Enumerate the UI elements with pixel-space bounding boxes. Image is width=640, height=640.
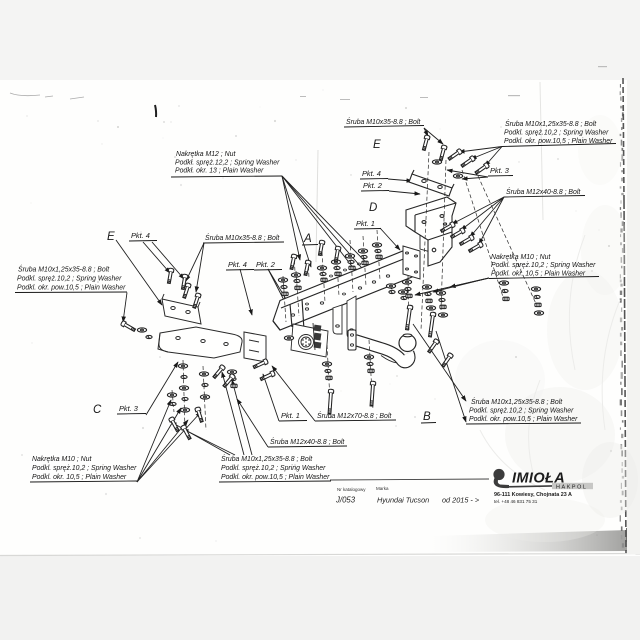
svg-text:Śruba M12x70-8.8 ; Bolt: Śruba M12x70-8.8 ; Bolt [317, 411, 392, 420]
svg-text:Podkl. spręż.10,2 ; Spring Was: Podkl. spręż.10,2 ; Spring Washer [221, 465, 326, 472]
svg-text:Marka: Marka [376, 486, 389, 491]
svg-text:Podkl. spręż.10,2 ; Spring Was: Podkl. spręż.10,2 ; Spring Washer [504, 130, 609, 137]
svg-text:Śruba M10x1,25x35-8.8 ; Bolt: Śruba M10x1,25x35-8.8 ; Bolt [471, 397, 563, 406]
svg-text:J/053: J/053 [335, 496, 356, 505]
svg-text:C: C [93, 404, 102, 416]
svg-text:96-111 Kowiesy, Chojnata 23 A: 96-111 Kowiesy, Chojnata 23 A [494, 492, 572, 498]
svg-text:A: A [303, 233, 312, 245]
svg-text:Podkl. spręż.10,2 ; Spring Was: Podkl. spręż.10,2 ; Spring Washer [469, 408, 574, 415]
svg-text:Podkł. spręż.12,2 ; Spring Was: Podkł. spręż.12,2 ; Spring Washer [175, 160, 280, 167]
svg-text:Pkt. 1: Pkt. 1 [281, 411, 300, 420]
svg-text:E: E [373, 139, 381, 151]
svg-text:Nr katalogowy: Nr katalogowy [337, 487, 366, 492]
svg-text:Pkt. 4: Pkt. 4 [131, 231, 150, 240]
svg-text:Śruba M12x40-8.8 ; Bolt: Śruba M12x40-8.8 ; Bolt [270, 437, 345, 446]
svg-text:Śruba M10x35-8.8 ; Bolt: Śruba M10x35-8.8 ; Bolt [346, 117, 421, 126]
svg-text:D: D [369, 202, 377, 214]
svg-text:Śruba M10x35-8.8 ; Bolt: Śruba M10x35-8.8 ; Bolt [205, 233, 280, 242]
svg-text:HAKPOL: HAKPOL [556, 484, 587, 490]
svg-text:od 2015 - >: od 2015 - > [442, 496, 480, 505]
svg-text:Śruba M10x1,25x35-8.8 ; Bolt: Śruba M10x1,25x35-8.8 ; Bolt [221, 454, 313, 463]
svg-text:Podkl. spręż.10,2 ; Spring Was: Podkl. spręż.10,2 ; Spring Washer [17, 276, 122, 283]
svg-text:Podkl. okr. pow.10,5 ; Plain W: Podkl. okr. pow.10,5 ; Plain Washer [17, 285, 126, 292]
svg-text:Podkl. okr. pow.10,5 ; Plain W: Podkl. okr. pow.10,5 ; Plain Washer [469, 416, 578, 423]
svg-text:Nakrętka M10 ; Nut: Nakrętka M10 ; Nut [491, 254, 551, 261]
svg-text:Podkł. okr. 13 ; Plain Washer: Podkł. okr. 13 ; Plain Washer [175, 168, 264, 175]
svg-text:Pkt. 2: Pkt. 2 [363, 181, 382, 190]
svg-text:Pkt. 4: Pkt. 4 [362, 169, 381, 178]
svg-text:tel. +48 46 831 75 31: tel. +48 46 831 75 31 [494, 499, 538, 504]
svg-text:Podkl. okr. 10,5 ; Plain Washe: Podkl. okr. 10,5 ; Plain Washer [32, 474, 127, 481]
svg-text:Nakrętka M10 ; Nut: Nakrętka M10 ; Nut [32, 456, 92, 463]
svg-text:Śruba M10x1,25x35-8.8 ; Bolt: Śruba M10x1,25x35-8.8 ; Bolt [505, 119, 597, 128]
svg-text:Podkl. spręż.10,2 ; Spring Was: Podkl. spręż.10,2 ; Spring Washer [491, 262, 596, 269]
svg-text:Podkl. okr. pow.10,5 ; Plain W: Podkl. okr. pow.10,5 ; Plain Washer [221, 474, 330, 481]
svg-text:Nakrętka M12 ; Nut: Nakrętka M12 ; Nut [176, 151, 236, 158]
svg-text:Pkt. 1: Pkt. 1 [356, 219, 375, 228]
svg-text:Podkl. spręż.10,2 ; Spring Was: Podkl. spręż.10,2 ; Spring Washer [32, 465, 137, 472]
svg-text:Pkt. 4: Pkt. 4 [228, 260, 247, 269]
svg-text:Pkt. 2: Pkt. 2 [256, 260, 275, 269]
svg-text:E: E [107, 231, 115, 243]
svg-text:Pkt. 3: Pkt. 3 [490, 166, 510, 175]
svg-text:Pkt. 3: Pkt. 3 [119, 404, 139, 413]
svg-text:B: B [423, 411, 431, 423]
svg-text:Śruba M10x1,25x35-8.8 ; Bolt: Śruba M10x1,25x35-8.8 ; Bolt [18, 265, 110, 274]
svg-text:Podkl. okr. 10,5 ; Plain Washe: Podkl. okr. 10,5 ; Plain Washer [491, 271, 586, 278]
svg-text:Śruba M12x40-8.8 ; Bolt: Śruba M12x40-8.8 ; Bolt [506, 187, 581, 196]
svg-text:Hyundai Tucson: Hyundai Tucson [377, 496, 429, 505]
